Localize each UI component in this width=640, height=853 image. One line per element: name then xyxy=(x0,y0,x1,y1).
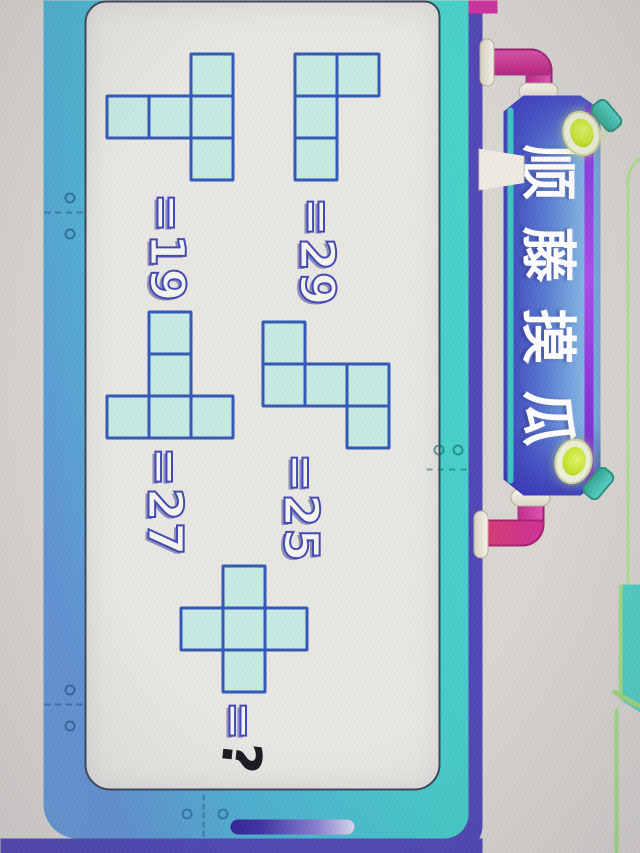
panel-edge-right xyxy=(0,838,482,853)
equals-sign: = xyxy=(138,192,194,233)
grid-cell xyxy=(147,94,192,139)
screw-icon xyxy=(64,192,75,203)
shape-grid xyxy=(261,320,390,449)
grid-cell xyxy=(303,362,348,407)
panel-seam xyxy=(44,703,82,705)
equation-value: 29 xyxy=(288,237,344,306)
grid-cell xyxy=(189,94,234,139)
grid-cell xyxy=(147,394,192,439)
panel-seam xyxy=(426,468,466,470)
panel-seam xyxy=(44,211,82,213)
grid-cell xyxy=(293,52,338,97)
equation-value: 25 xyxy=(272,493,328,562)
shape-grid xyxy=(105,310,234,439)
equation: =19 xyxy=(138,192,194,302)
grid-cell xyxy=(189,136,234,181)
equation: =29 xyxy=(288,196,344,306)
equation: =27 xyxy=(136,446,192,556)
equation: =25 xyxy=(272,452,328,562)
shape-l-tetromino xyxy=(293,52,380,181)
shape-grid xyxy=(179,564,308,693)
shape-grid xyxy=(105,52,234,181)
grid-cell xyxy=(147,310,192,355)
shape-plus-pentomino xyxy=(179,564,308,693)
pipe-flange xyxy=(473,510,488,558)
shape-grid xyxy=(293,52,380,181)
screw-icon xyxy=(433,444,444,455)
equals-sign: = xyxy=(288,196,344,237)
grid-cell xyxy=(345,362,390,407)
grid-cell xyxy=(261,362,306,407)
grid-cell xyxy=(179,606,224,651)
panel-seam xyxy=(202,794,204,836)
pipe-flange xyxy=(479,38,494,86)
equation-value: 27 xyxy=(136,487,192,556)
green-trim-corner xyxy=(626,150,640,630)
green-trim-line xyxy=(614,708,618,853)
screw-icon xyxy=(217,808,228,819)
screw-icon xyxy=(64,228,75,239)
grid-cell xyxy=(345,404,390,449)
grid-cell xyxy=(263,606,308,651)
game-scene: 顺藤摸瓜 =29 =25 =19 =27 xyxy=(0,0,640,853)
frame-slot xyxy=(230,819,354,834)
grid-cell xyxy=(147,352,192,397)
shape-t-pentomino-down xyxy=(105,52,234,181)
screw-icon xyxy=(452,444,463,455)
equals-sign: = xyxy=(272,452,328,493)
grid-cell xyxy=(293,136,338,181)
grid-cell xyxy=(105,94,150,139)
screw-icon xyxy=(64,684,75,695)
shape-s-pentomino xyxy=(261,320,390,449)
grid-cell xyxy=(189,52,234,97)
grid-cell xyxy=(189,394,234,439)
equation-value: 19 xyxy=(138,233,194,302)
grid-cell xyxy=(293,94,338,139)
equation: =? xyxy=(209,700,272,774)
grid-cell xyxy=(105,394,150,439)
photographed-screen: 顺藤摸瓜 =29 =25 =19 =27 xyxy=(0,0,640,853)
equals-sign: = xyxy=(210,700,266,741)
grid-cell xyxy=(335,52,380,97)
screw-icon xyxy=(64,720,75,731)
screw-icon xyxy=(181,808,192,819)
grid-cell xyxy=(261,320,306,365)
grid-cell xyxy=(221,606,266,651)
shape-t-pentomino-left xyxy=(105,310,234,439)
grid-cell xyxy=(221,564,266,609)
grid-cell xyxy=(221,648,266,693)
equals-sign: = xyxy=(136,446,192,487)
equation-value: ? xyxy=(207,738,273,777)
frame-cap xyxy=(465,0,497,13)
